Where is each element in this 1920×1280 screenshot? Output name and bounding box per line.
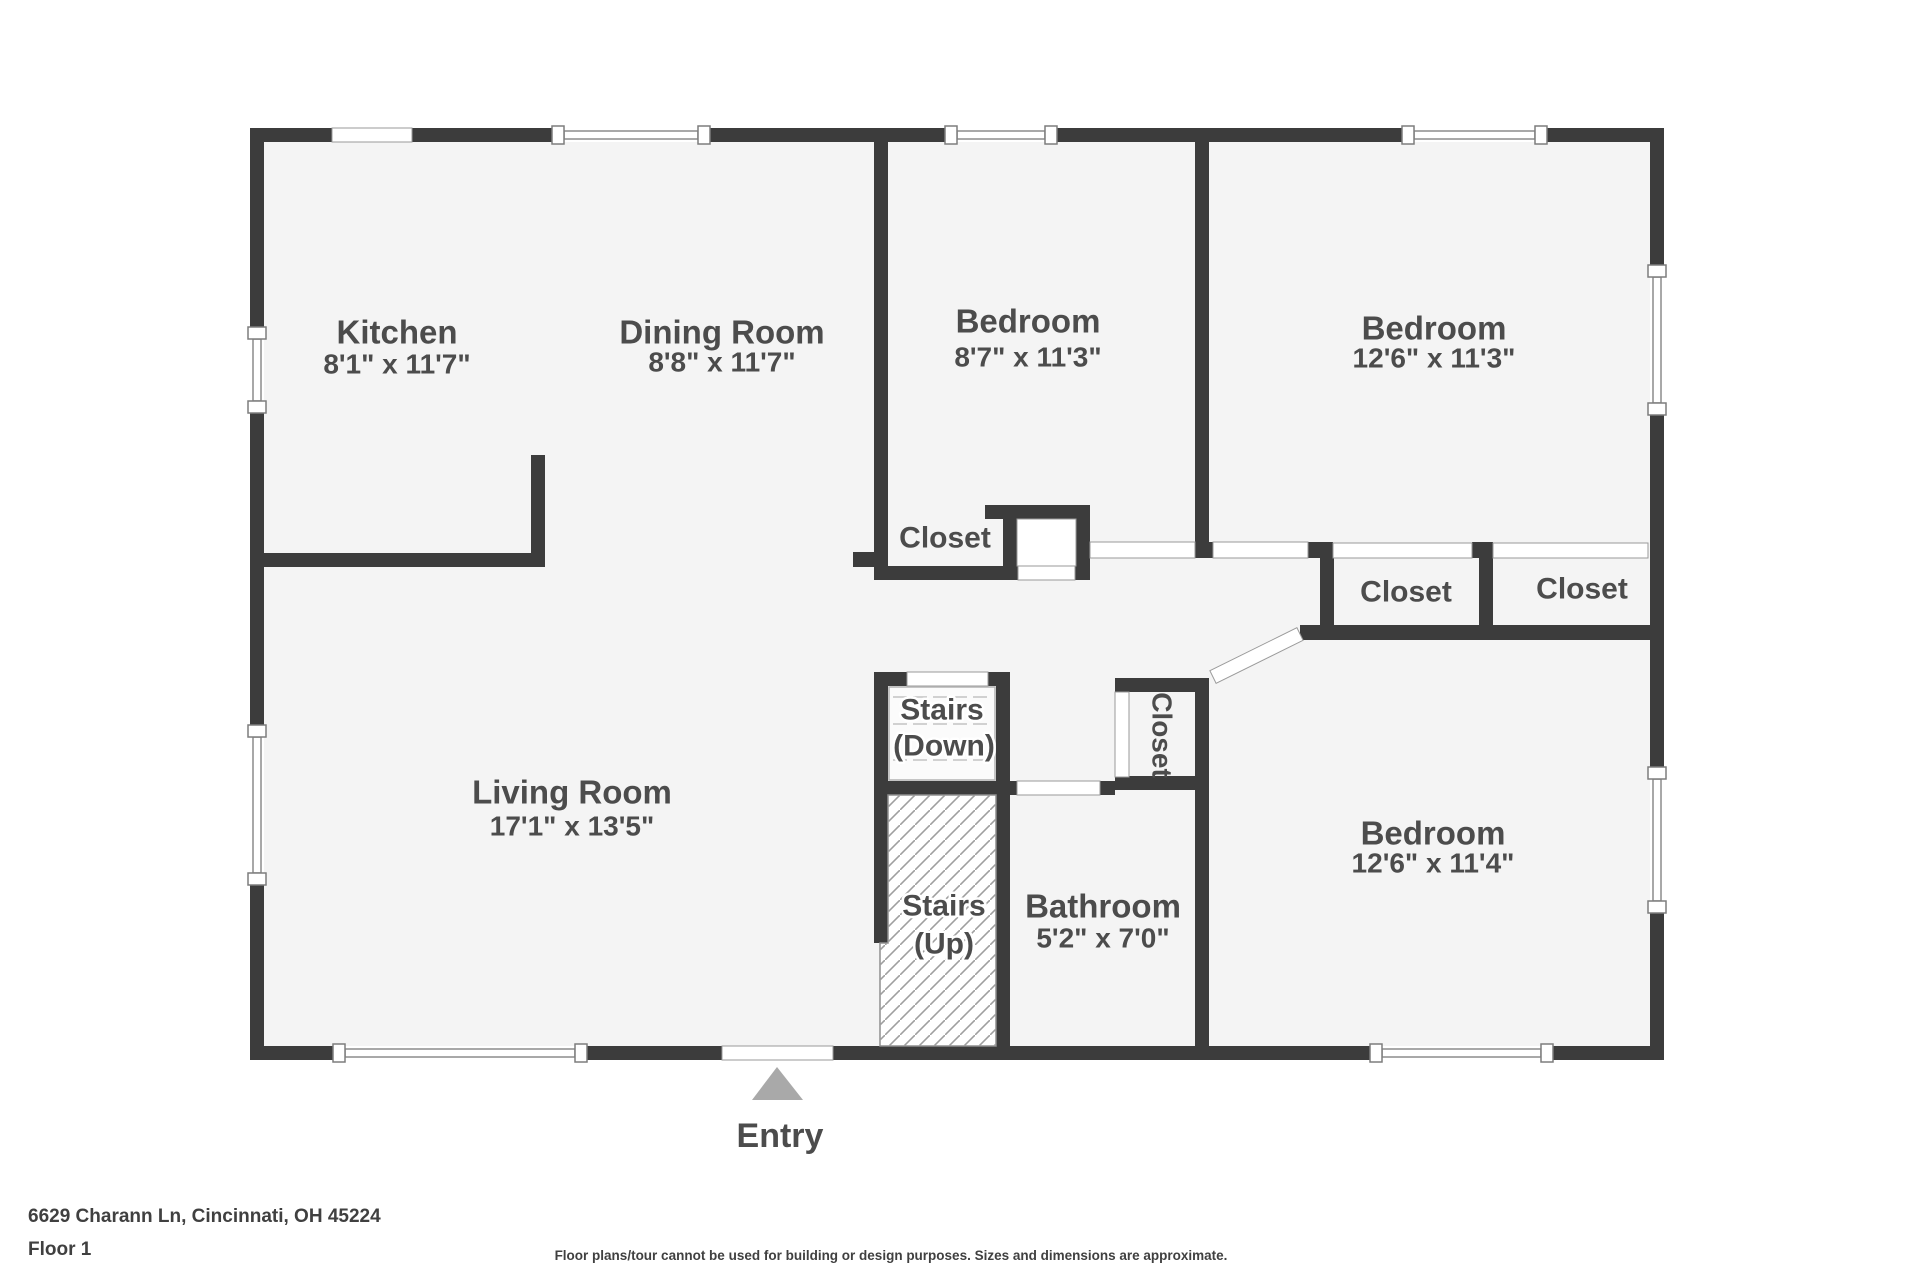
kitchen-peninsula-wall xyxy=(531,455,545,567)
bedroom3-label: Bedroom xyxy=(1361,815,1506,852)
floor-label-text: Floor 1 xyxy=(28,1239,92,1260)
window-bottom-bedroom3 xyxy=(1370,1044,1553,1062)
bedroom1-closet-label: Closet xyxy=(899,522,991,555)
entry-arrow-icon xyxy=(752,1067,803,1100)
closet-left-door xyxy=(1333,543,1472,558)
floor-plan-canvas: Kitchen 8'1" x 11'7" Dining Room 8'8" x … xyxy=(0,0,1920,1280)
bedroom2-door xyxy=(1213,542,1308,558)
closet-right-label: Closet xyxy=(1536,573,1628,606)
kitchen-dims: 8'1" x 11'7" xyxy=(323,349,470,380)
window-top-bedroom2 xyxy=(1402,126,1547,144)
bathroom-dims: 5'2" x 7'0" xyxy=(1036,923,1169,954)
box-closet-top-wall xyxy=(985,505,1090,519)
dining-label: Dining Room xyxy=(619,314,824,351)
dining-bedroom-wall xyxy=(874,142,888,580)
bedroom1-door xyxy=(1090,542,1195,558)
bedroom2-dims: 12'6" x 11'3" xyxy=(1353,343,1516,374)
bathroom-door xyxy=(1017,781,1100,795)
stairs-down-label-1: Stairs xyxy=(900,694,983,727)
bedroom1-label: Bedroom xyxy=(956,303,1101,340)
entry-label: Entry xyxy=(737,1117,824,1155)
bathroom-bedroom-wall xyxy=(1195,678,1209,1046)
disclaimer-text: Floor plans/tour cannot be used for buil… xyxy=(555,1248,1228,1263)
box-closet-interior xyxy=(1017,519,1076,566)
stairs-up-label-1: Stairs xyxy=(902,890,985,923)
dining-dims: 8'8" x 11'7" xyxy=(648,347,795,378)
window-left-kitchen xyxy=(248,327,266,413)
window-right-bedroom3 xyxy=(1648,767,1666,913)
bedrooms-divider-wall xyxy=(1195,142,1209,542)
entry-door-opening xyxy=(722,1046,833,1060)
entry-marker: Entry xyxy=(737,1067,824,1155)
address-text: 6629 Charann Ln, Cincinnati, OH 45224 xyxy=(28,1206,381,1227)
stairs-mid-wall xyxy=(874,781,1010,795)
window-bottom-living xyxy=(333,1044,587,1062)
footer: 6629 Charann Ln, Cincinnati, OH 45224 Fl… xyxy=(28,1206,1227,1263)
closets-bottom-wall xyxy=(1300,625,1664,640)
window-right-bedroom2 xyxy=(1648,265,1666,415)
closet-right-door xyxy=(1493,543,1648,558)
closet-left-label: Closet xyxy=(1360,576,1452,609)
stairs-right-wall xyxy=(996,672,1010,1046)
kitchen-living-wall xyxy=(264,553,545,567)
kitchen-top-opening xyxy=(332,128,412,142)
window-top-bedroom1 xyxy=(945,126,1057,144)
floor-plan-page: Kitchen 8'1" x 11'7" Dining Room 8'8" x … xyxy=(0,0,1920,1280)
living-label: Living Room xyxy=(472,774,672,811)
hall-closet-label: Closet xyxy=(1147,692,1178,778)
stairs-down-label-2: (Down) xyxy=(893,730,995,763)
dining-door-jamb xyxy=(853,552,874,567)
living-dims: 17'1" x 13'5" xyxy=(490,811,654,842)
stairs-opening xyxy=(907,672,988,686)
closets-divider-wall xyxy=(1479,557,1493,625)
window-top-dining xyxy=(552,126,710,144)
bedroom1-dims: 8'7" x 11'3" xyxy=(954,342,1101,373)
window-left-living xyxy=(248,725,266,885)
kitchen-label: Kitchen xyxy=(336,314,457,351)
box-closet-door xyxy=(1018,566,1075,580)
stairs-up-label-2: (Up) xyxy=(914,928,974,961)
bedroom3-dims: 12'6" x 11'4" xyxy=(1352,848,1515,879)
hall-closet-door xyxy=(1115,692,1129,777)
bathroom-label: Bathroom xyxy=(1025,888,1181,925)
bedroom2-label: Bedroom xyxy=(1362,310,1507,347)
